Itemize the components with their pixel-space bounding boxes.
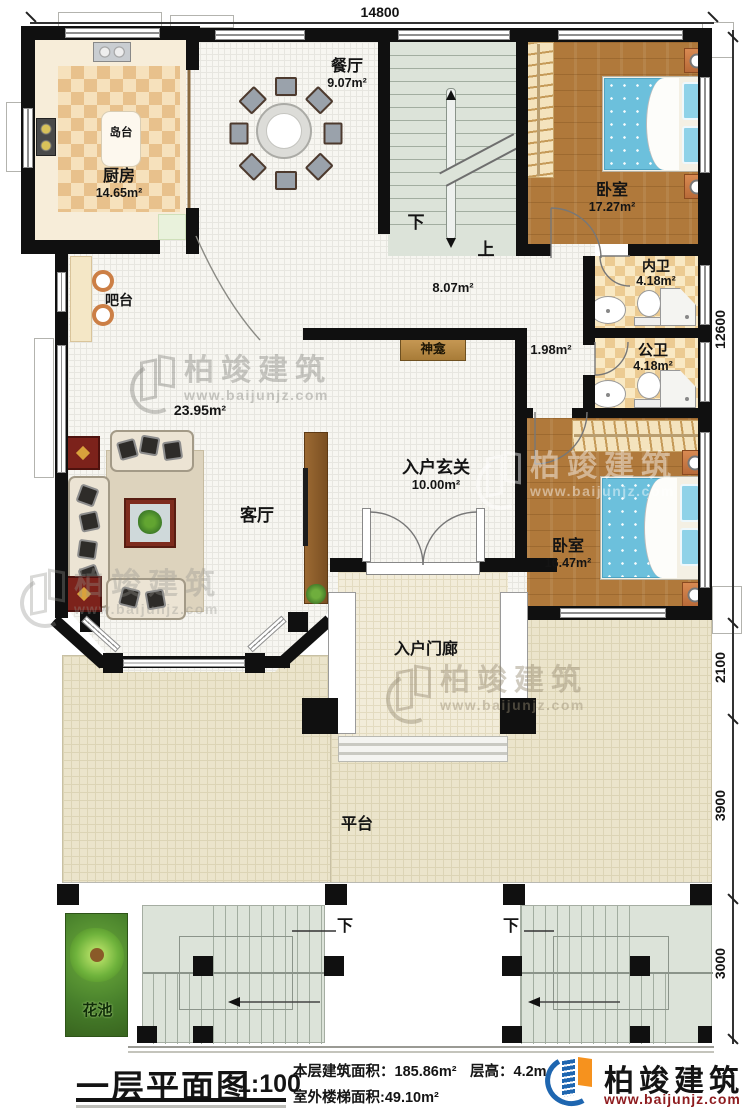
- height-value: 4.2m: [514, 1064, 547, 1080]
- room-name: 卧室: [513, 538, 623, 556]
- stair-label-down: 下: [396, 213, 436, 233]
- brand-logo-icon: [545, 1052, 603, 1110]
- room-label-dining: 餐厅 9.07m²: [307, 58, 387, 91]
- room-name: 餐厅: [307, 58, 387, 76]
- floor-area-label: 本层建筑面积：: [293, 1064, 395, 1080]
- room-label-living: 客厅: [212, 506, 302, 526]
- room-label-island: 岛台: [99, 127, 143, 140]
- room-name: 入户玄关: [376, 458, 496, 478]
- room-name: 厨房: [79, 168, 159, 186]
- stair-area-value: 49.10m²: [385, 1090, 439, 1106]
- room-name: 内卫: [616, 258, 696, 274]
- room-area: 4.18m²: [616, 274, 696, 288]
- room-label-bar: 吧台: [96, 292, 142, 308]
- floor-area-text: 本层建筑面积：185.86m²: [293, 1060, 457, 1081]
- area-label-hall: 8.07m²: [408, 281, 498, 296]
- room-area: 10.00m²: [376, 478, 496, 493]
- drawing-scale: 1:100: [237, 1070, 301, 1099]
- floor-height-text: 层高：4.2m: [470, 1060, 547, 1081]
- area-label-niche: 1.98m²: [506, 343, 596, 358]
- outdoor-stair-area-text: 室外楼梯面积:49.10m²: [293, 1086, 439, 1107]
- dimension-top-value: 14800: [340, 4, 420, 20]
- floor-plan-canvas: 神龛: [0, 0, 750, 1117]
- stair-label-outdoor-right: 下: [498, 918, 524, 936]
- dimension-right-stairs: 3000: [712, 948, 728, 979]
- room-name: 卧室: [567, 182, 657, 200]
- room-area: 4.18m²: [613, 359, 693, 373]
- logo-building-blue: [562, 1059, 575, 1097]
- stair-area-label: 室外楼梯面积:: [293, 1090, 385, 1106]
- floor-area-value: 185.86m²: [395, 1064, 457, 1080]
- room-label-porch: 入户门廊: [366, 641, 486, 659]
- room-label-public-bath: 公卫 4.18m²: [613, 342, 693, 374]
- room-label-kitchen: 厨房 14.65m²: [79, 168, 159, 201]
- dimension-right-main: 12600: [712, 310, 728, 349]
- dimension-right-porch: 2100: [712, 652, 728, 683]
- height-label: 层高：: [470, 1064, 514, 1080]
- room-label-bedroom2: 卧室 16.47m²: [513, 538, 623, 571]
- dimension-line-top: [30, 22, 714, 24]
- stair-label-outdoor-left: 下: [332, 918, 358, 936]
- room-area: 16.47m²: [513, 556, 623, 570]
- stair-label-up: 上: [466, 240, 506, 260]
- brand-url: www.baijunjz.com: [604, 1091, 741, 1107]
- room-area: 9.07m²: [307, 76, 387, 90]
- room-label-foyer: 入户玄关 10.00m²: [376, 458, 496, 492]
- dimension-line-right: [732, 30, 734, 1044]
- area-label-living: 23.95m²: [150, 402, 250, 418]
- dimension-right-platform: 3900: [712, 790, 728, 821]
- room-name: 公卫: [613, 342, 693, 359]
- logo-building-orange: [578, 1057, 592, 1087]
- room-area: 14.65m²: [79, 186, 159, 200]
- room-label-platform: 平台: [317, 816, 397, 834]
- room-area: 17.27m²: [567, 200, 657, 214]
- title-underline: [76, 1105, 286, 1108]
- room-label-inner-bath: 内卫 4.18m²: [616, 258, 696, 288]
- room-label-bedroom1: 卧室 17.27m²: [567, 182, 657, 215]
- title-underline: [76, 1098, 286, 1102]
